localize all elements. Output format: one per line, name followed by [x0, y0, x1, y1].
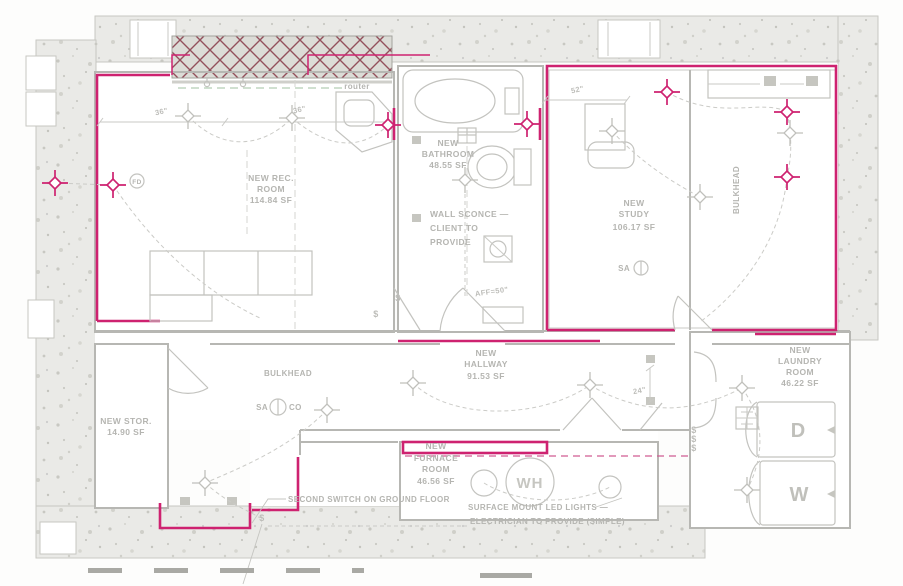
svg-text:HALLWAY: HALLWAY	[464, 359, 508, 369]
floor-plan-page: FD SA CO SA $ $ $ $ $ $ WH D W NEW REC. …	[0, 0, 903, 586]
led-note-line1: SURFACE MOUNT LED LIGHTS —	[468, 503, 608, 512]
bulkhead-study-note: BULKHEAD	[732, 166, 741, 214]
room-interiors	[95, 64, 850, 528]
led-note-line2: ELECTRICIAN TO PROVIDE (SIMPLE)	[470, 517, 625, 526]
svg-text:NEW: NEW	[475, 348, 497, 358]
switch-icon: $	[373, 309, 378, 319]
water-heater-label: WH	[517, 475, 544, 492]
svg-text:ROOM: ROOM	[257, 184, 285, 194]
sa-label: SA	[256, 403, 268, 412]
room-area: 91.53 SF	[467, 371, 505, 381]
svg-text:NEW STOR.: NEW STOR.	[100, 416, 152, 426]
svg-text:BATHROOM: BATHROOM	[422, 149, 475, 159]
switch-icon: $	[691, 443, 696, 453]
dryer-label: D	[791, 420, 805, 442]
room-area: 114.84 SF	[250, 195, 292, 205]
hatched-duct-band	[172, 36, 392, 82]
svg-text:NEW: NEW	[789, 345, 811, 355]
svg-text:CLIENT TO: CLIENT TO	[430, 223, 478, 233]
svg-text:LAUNDRY: LAUNDRY	[778, 356, 822, 366]
svg-text:ROOM: ROOM	[422, 464, 450, 474]
light-icon	[192, 470, 218, 496]
floor-drain-label: FD	[132, 179, 141, 186]
floor-plan-canvas: FD SA CO SA $ $ $ $ $ $ WH D W NEW REC. …	[0, 0, 903, 586]
svg-text:NEW REC.: NEW REC.	[248, 173, 294, 183]
svg-text:NEW: NEW	[437, 138, 459, 148]
switch-icon: $	[395, 293, 400, 303]
svg-text:FURNACE: FURNACE	[414, 453, 458, 463]
room-area: 48.55 SF	[429, 160, 467, 170]
svg-text:PROVIDE: PROVIDE	[430, 237, 471, 247]
room-area: 46.22 SF	[781, 378, 819, 388]
room-area: 106.17 SF	[613, 222, 656, 232]
svg-text:NEW: NEW	[623, 198, 645, 208]
second-switch-note: SECOND SWITCH ON GROUND FLOOR	[288, 495, 450, 504]
router-note: router	[344, 82, 370, 91]
room-label-storage: NEW STOR. 14.90 SF	[100, 416, 152, 437]
svg-text:STUDY: STUDY	[619, 209, 650, 219]
svg-text:WALL SCONCE —: WALL SCONCE —	[430, 209, 509, 219]
switch-icon: $	[259, 513, 264, 523]
washer-label: W	[790, 484, 809, 506]
sa-study-label: SA	[618, 264, 630, 273]
room-area: 14.90 SF	[107, 427, 145, 437]
svg-text:NEW: NEW	[425, 441, 447, 451]
room-area: 46.56 SF	[417, 476, 455, 486]
bottom-ticks	[88, 568, 532, 578]
bulkhead-hall-note: BULKHEAD	[264, 369, 312, 378]
co-label: CO	[289, 403, 302, 412]
svg-text:ROOM: ROOM	[786, 367, 814, 377]
